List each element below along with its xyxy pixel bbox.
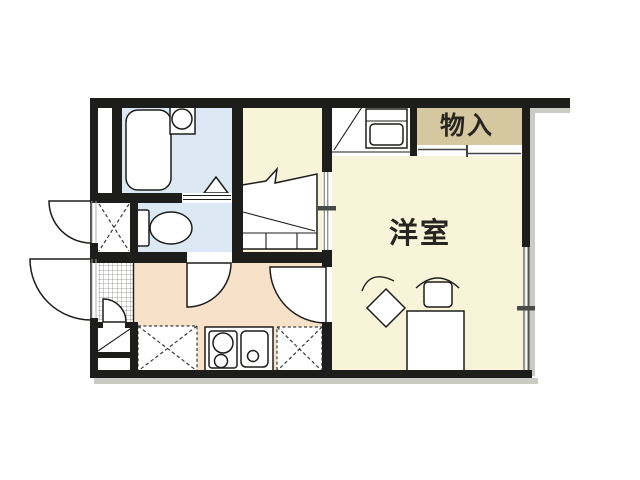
outdoor-storage-door-swing-arc (49, 201, 91, 243)
appliance-space-left (138, 326, 197, 371)
desk-icon (407, 311, 464, 371)
kitchen-counter-unit (205, 327, 273, 371)
floorplan-svg: 物入 洋室 (0, 0, 640, 480)
entrance-door-swing-arc (30, 259, 91, 320)
two-burner-stove-icon (209, 331, 237, 368)
entrance-steps (98, 328, 130, 370)
appliance-space-right (277, 327, 322, 371)
storage-label: 物入 (440, 112, 494, 140)
entry-closet-space (98, 203, 130, 252)
washing-machine-icon (366, 109, 407, 148)
western-room-label: 洋室 (389, 216, 451, 250)
toilet-icon (136, 210, 192, 246)
wash-basin-icon (170, 107, 195, 134)
floorplan-image: 物入 洋室 (0, 0, 640, 480)
kitchen-sink-icon (241, 331, 268, 367)
bathroom-door-track-lines (182, 193, 232, 203)
bathtub-icon (126, 110, 171, 190)
storage-sliding-door (417, 145, 522, 157)
